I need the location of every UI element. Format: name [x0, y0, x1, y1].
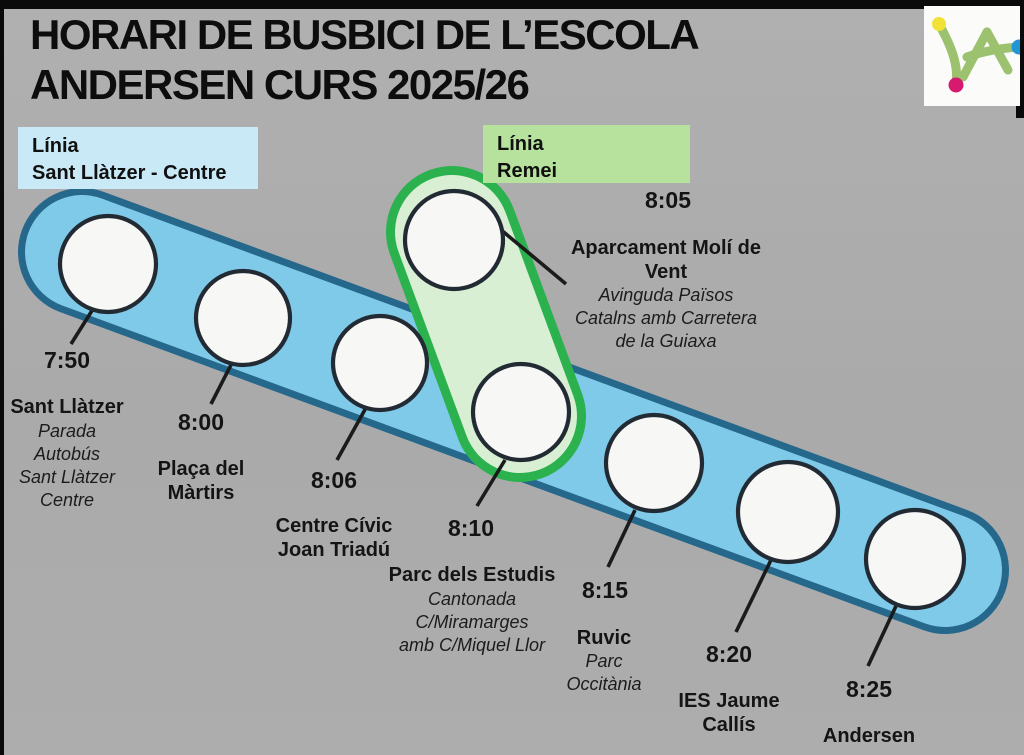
callout-andersen	[868, 606, 896, 666]
photo-edge-top	[0, 0, 1024, 9]
stop-time: 8:05	[568, 187, 768, 214]
legend-linia-sant-llatzer-centre: Línia Sant Llàtzer - Centre	[18, 127, 258, 189]
stop-circle-andersen	[866, 510, 964, 608]
logo-dot-magenta	[949, 78, 964, 93]
stop-circle-ruvic	[606, 415, 702, 511]
school-logo	[924, 6, 1020, 106]
stop-name: Aparcament Molí de Vent	[551, 236, 781, 284]
stop-circle-parc-estudis	[473, 364, 569, 460]
stop-time: 7:50	[0, 347, 167, 374]
stop-circle-centre-civic	[333, 316, 427, 410]
stop-time: 8:15	[505, 577, 705, 604]
stop-time: 8:00	[101, 409, 301, 436]
stop-desc: Avinguda Països Catalns amb Carretera de…	[551, 284, 781, 353]
stop-name: Andersen	[754, 724, 984, 748]
callout-ies-jaume	[736, 560, 771, 632]
stop-circle-ies-jaume	[738, 462, 838, 562]
stop-time: 8:06	[234, 467, 434, 494]
photo-edge-left	[0, 0, 4, 755]
legend-linia-remei: Línia Remei	[483, 125, 690, 183]
busbici-schedule-poster: HORARI DE BUSBICI DE L’ESCOLA ANDERSEN C…	[0, 0, 1024, 755]
stop-circle-placa-martirs	[196, 271, 290, 365]
page-title: HORARI DE BUSBICI DE L’ESCOLA ANDERSEN C…	[30, 10, 730, 110]
stop-circle-aparcament-moli	[405, 191, 503, 289]
stop-circle-sant-llatzer	[60, 216, 156, 312]
stop-time: 8:25	[769, 676, 969, 703]
stop-time: 8:10	[371, 515, 571, 542]
logo-dot-yellow	[932, 17, 946, 31]
stop-time: 8:20	[629, 641, 829, 668]
logo-dot-blue	[1012, 40, 1021, 55]
andersen-logo-icon	[924, 6, 1020, 106]
